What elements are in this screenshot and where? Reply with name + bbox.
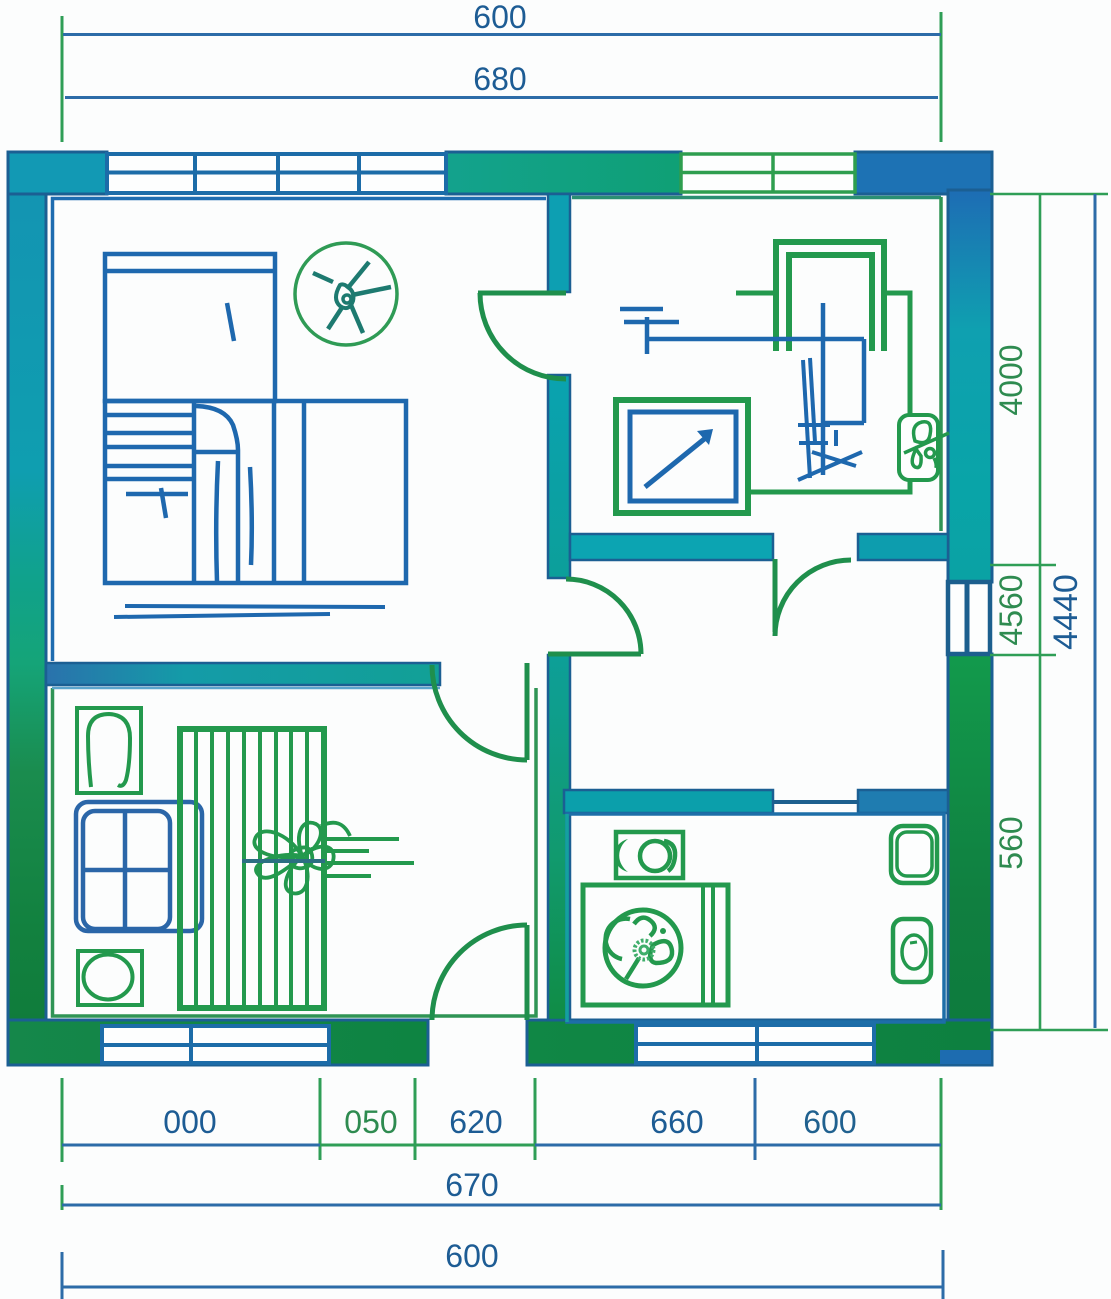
svg-text:000: 000 xyxy=(163,1104,216,1140)
svg-text:600: 600 xyxy=(473,0,526,35)
svg-text:620: 620 xyxy=(449,1104,502,1140)
svg-text:680: 680 xyxy=(473,61,526,97)
svg-text:600: 600 xyxy=(445,1238,498,1274)
svg-text:670: 670 xyxy=(445,1167,498,1203)
svg-text:4560: 4560 xyxy=(993,574,1029,645)
svg-text:660: 660 xyxy=(650,1104,703,1140)
svg-text:600: 600 xyxy=(803,1104,856,1140)
svg-text:4440: 4440 xyxy=(1047,574,1085,650)
svg-text:560: 560 xyxy=(993,816,1029,869)
svg-text:050: 050 xyxy=(344,1104,397,1140)
svg-text:4000: 4000 xyxy=(993,344,1029,415)
